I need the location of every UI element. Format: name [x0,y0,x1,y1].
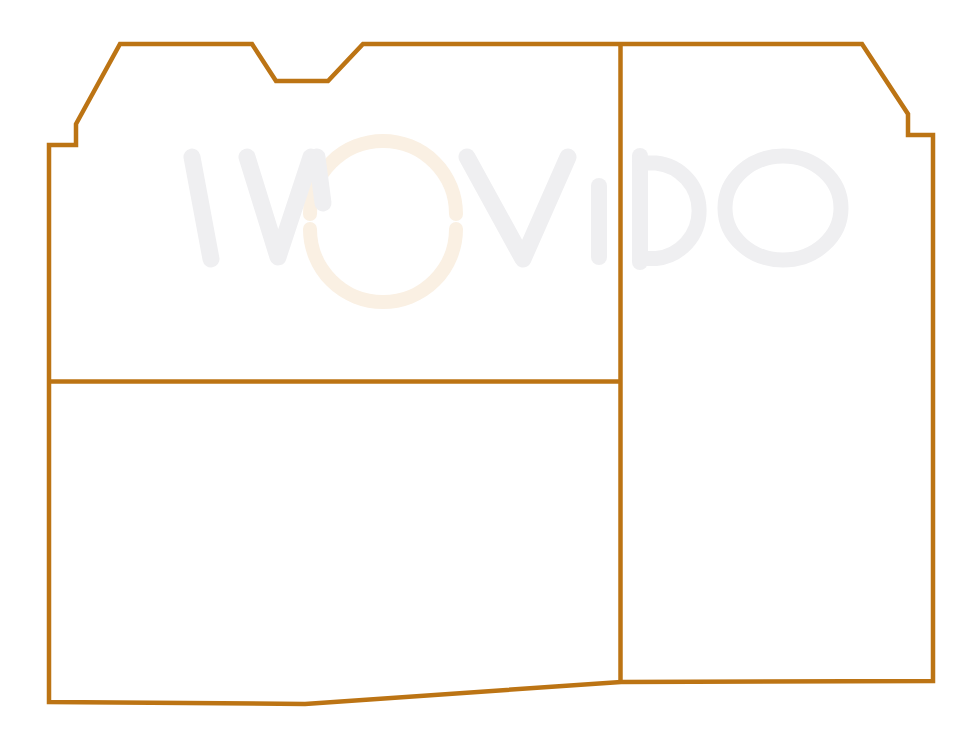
panel-outline-shape [49,44,933,704]
watermark-glyph-o [725,156,841,260]
watermark-glyph-w-vee [247,157,311,257]
watermark-logo [192,141,841,302]
watermark-glyph-d-bowl [640,163,699,259]
watermark-accent-circle-top-arc [310,141,456,214]
watermark-glyph-w-stem [192,157,211,259]
panel-drawing-canvas [0,0,972,733]
watermark-glyph-v [467,157,568,259]
watermark-glyph-w-tail [317,157,323,203]
panel-outline-group [49,44,933,704]
panel-drawing-svg [0,0,972,733]
watermark-accent-circle-bottom-arc [310,229,456,302]
